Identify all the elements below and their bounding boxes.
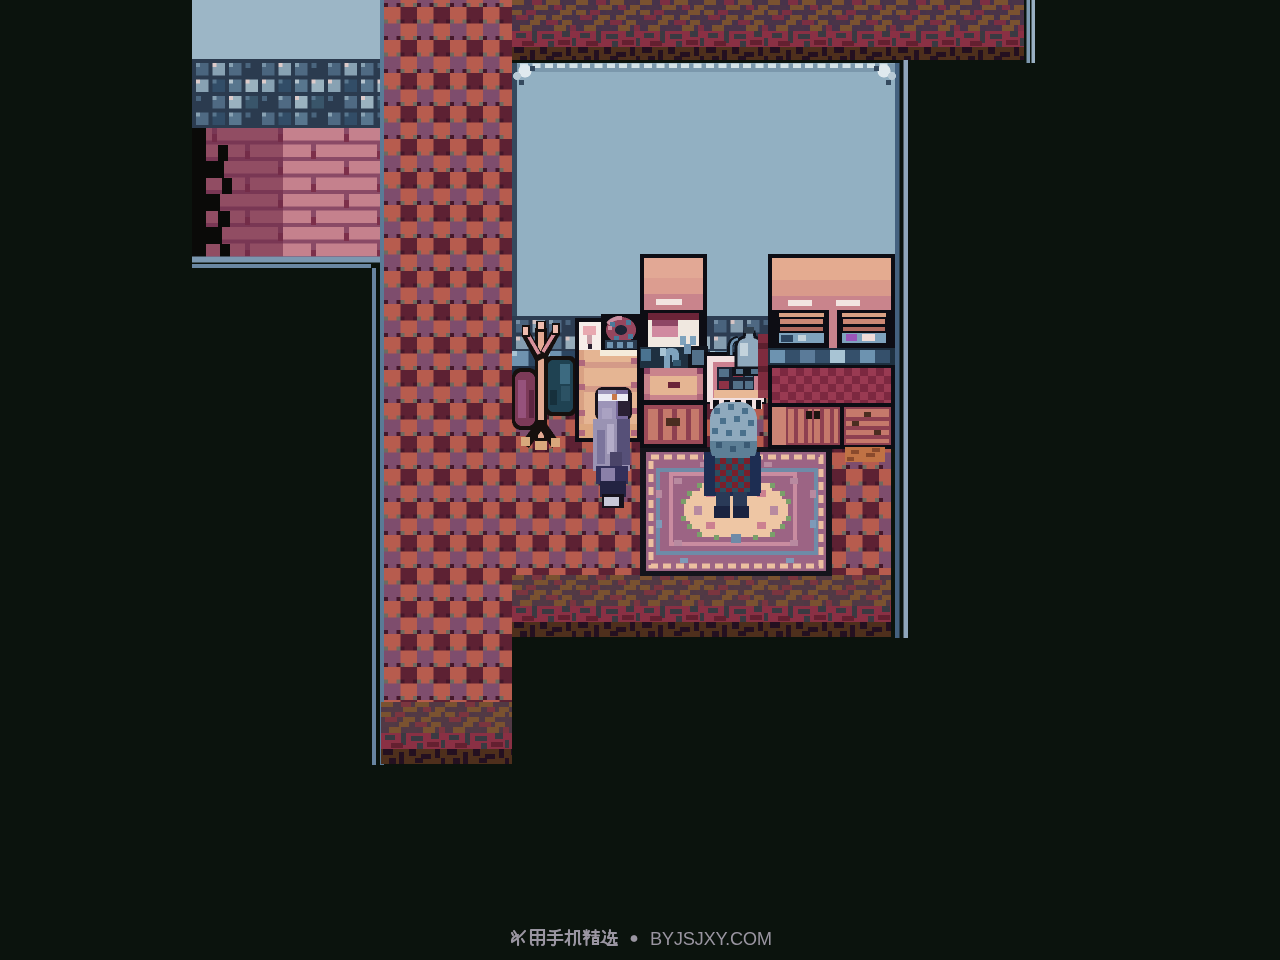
svg-text:BYJSJXY.COM: BYJSJXY.COM bbox=[650, 929, 772, 949]
